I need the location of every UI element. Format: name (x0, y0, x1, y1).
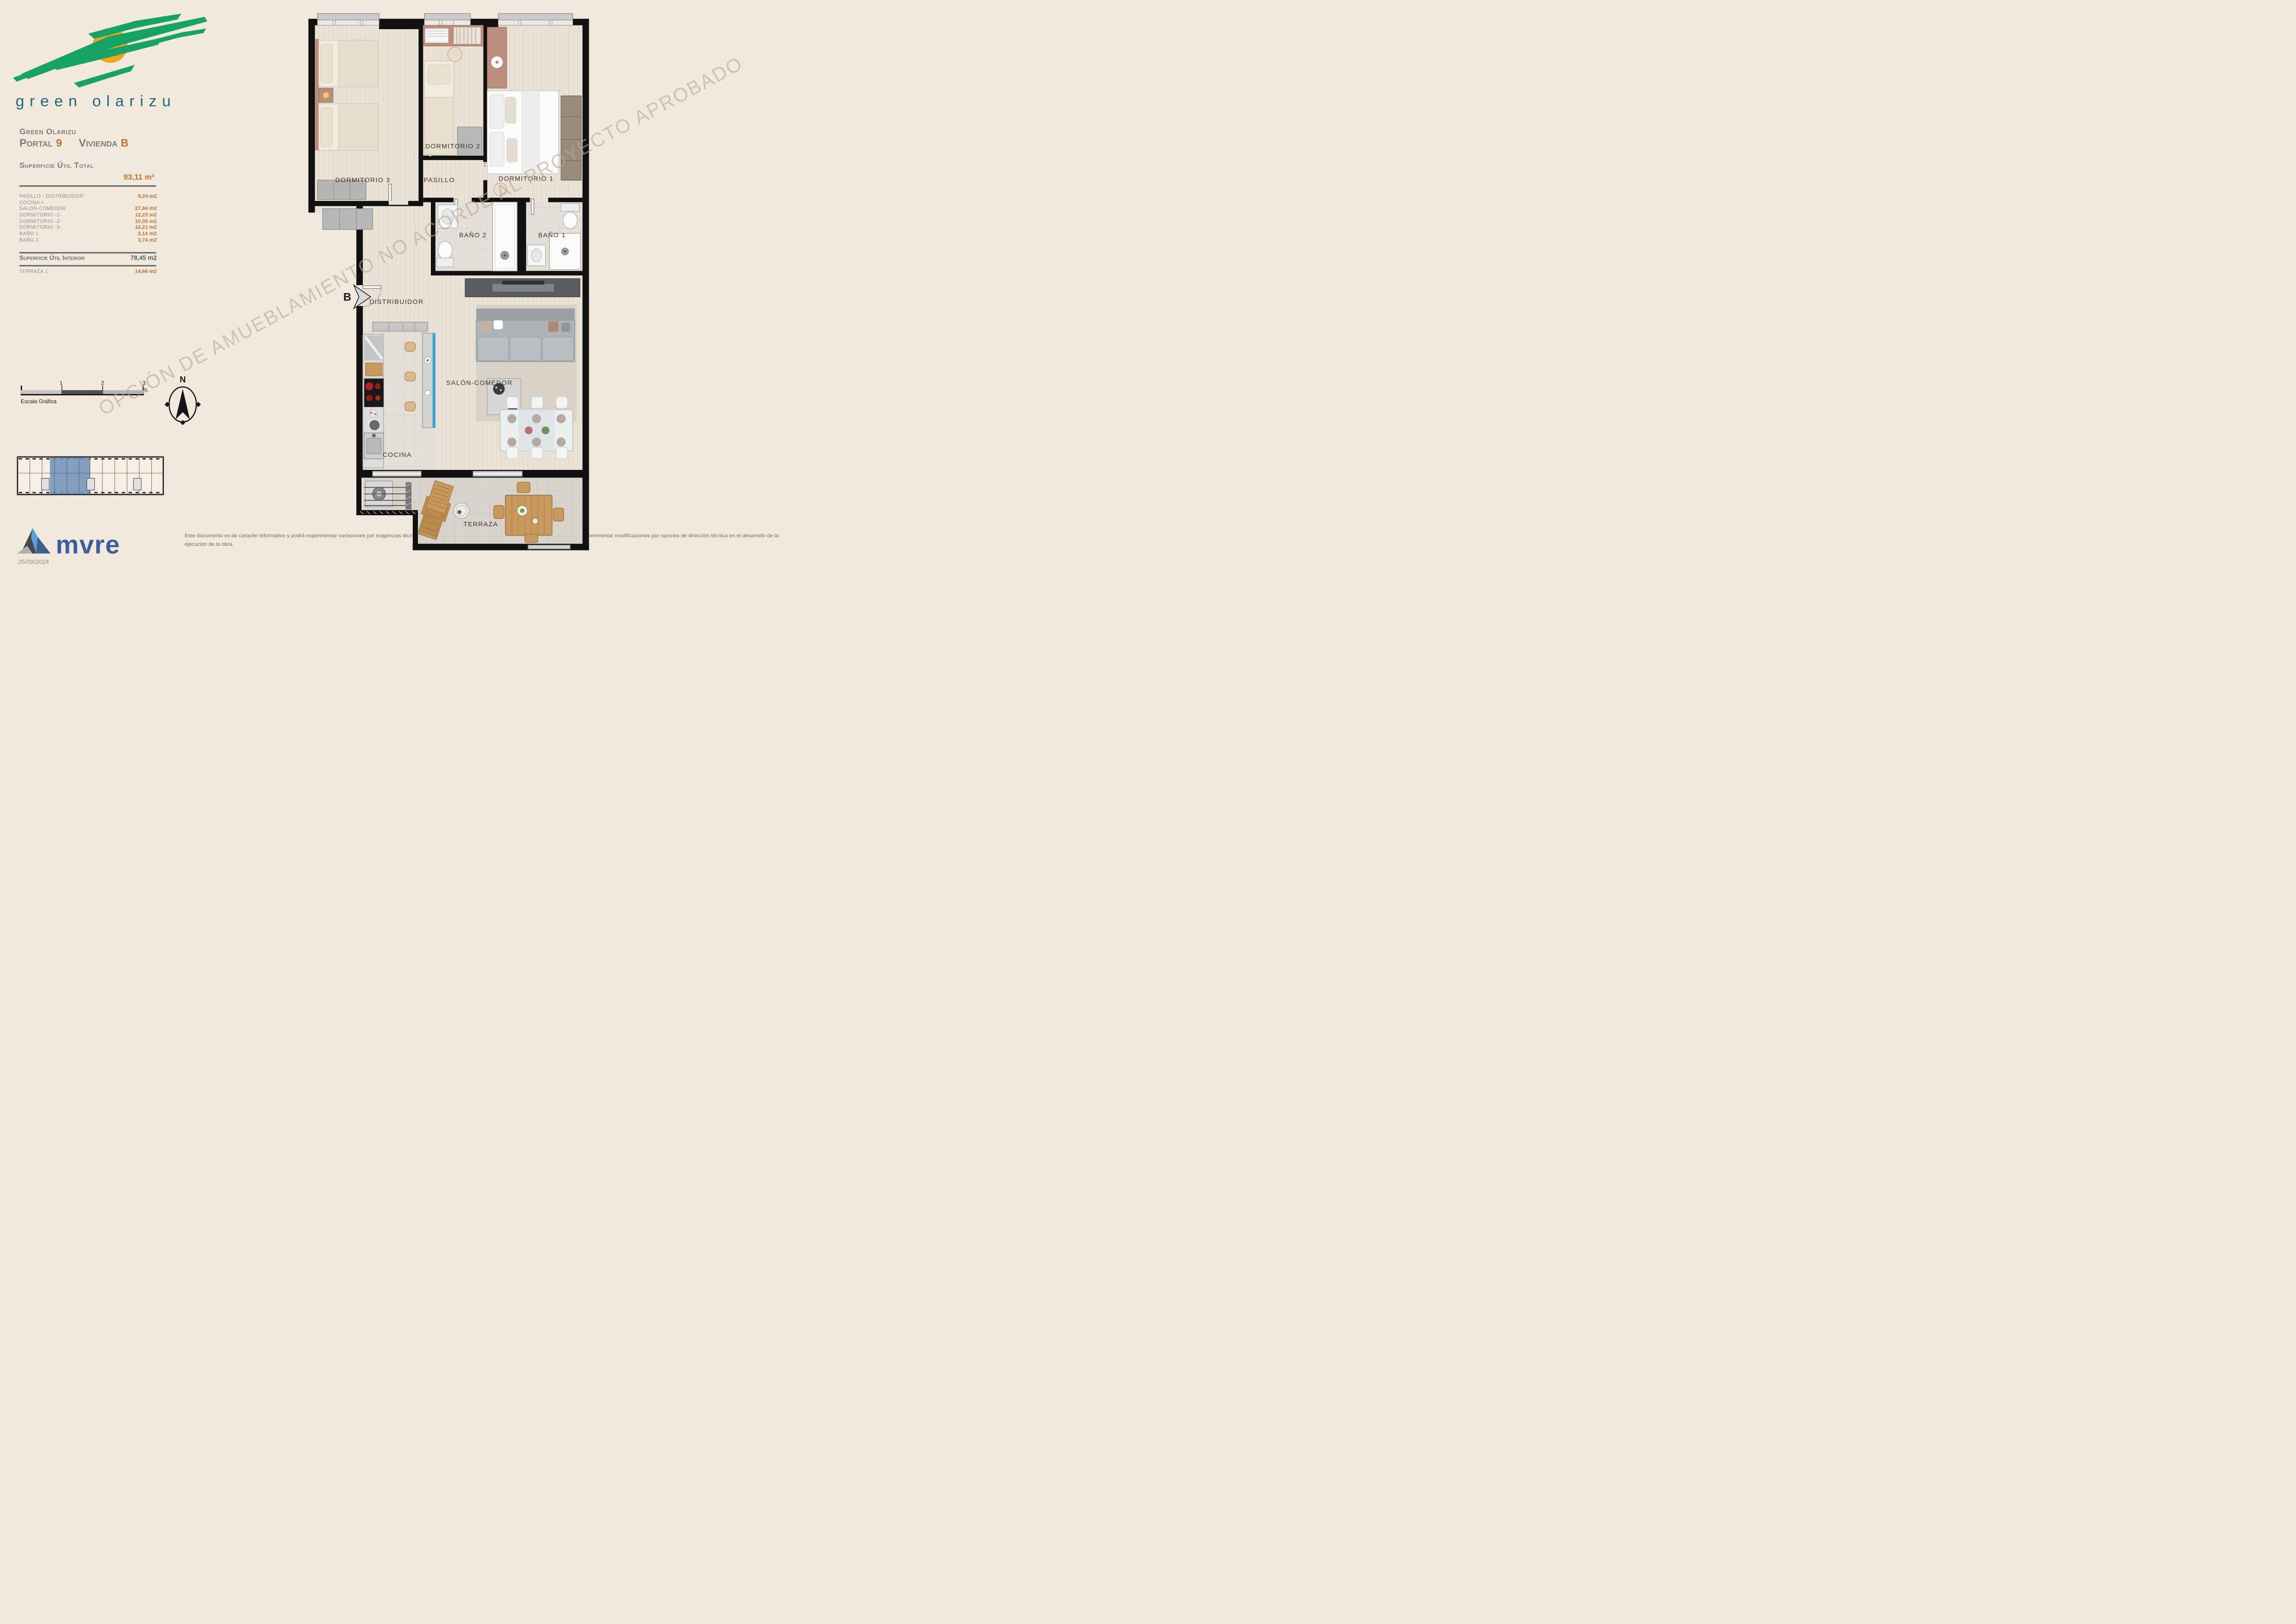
window-dorm3 (317, 13, 379, 25)
label-dormitorio2: DORMITORIO 2 (425, 143, 480, 150)
label-terraza: TERRAZA (463, 520, 498, 528)
label-salon-comedor: SALÓN-COMEDOR (446, 379, 512, 387)
window-dorm1 (498, 13, 573, 25)
label-bano2: BAÑO 2 (459, 231, 487, 238)
label-dormitorio3: DORMITORIO 3 (335, 176, 390, 183)
label-distribuidor: DISTRIBUIDOR (369, 298, 423, 306)
label-pasillo: PASILLO (424, 176, 455, 183)
label-bano1: BAÑO 1 (538, 231, 566, 238)
floorplan-sheet: B DORMITORIO 3 DORMITORIO 2 DORMITORIO 1… (0, 0, 803, 568)
facade-windows (317, 13, 573, 25)
window-dorm2 (424, 13, 470, 25)
label-cocina: COCINA (383, 451, 412, 458)
entrance-letter: B (343, 291, 351, 304)
